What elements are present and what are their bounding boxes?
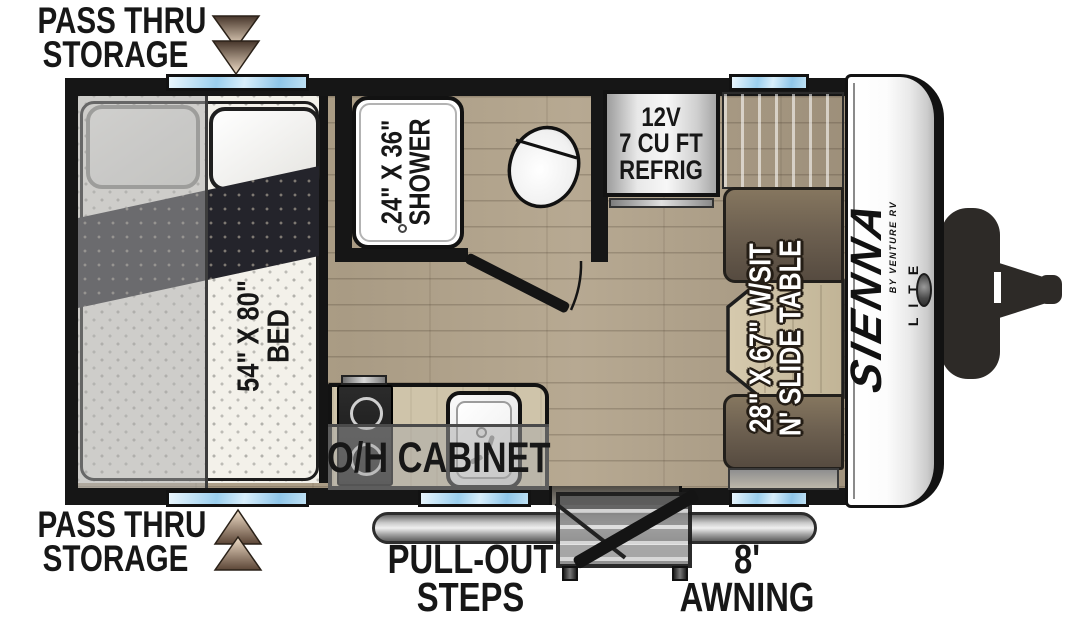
bathroom-wall-bottom (335, 248, 468, 262)
window (729, 490, 809, 507)
stove-vent (341, 375, 387, 385)
hitch-coupler (1038, 275, 1062, 304)
awning-label: 8' AWNING (679, 540, 815, 616)
pull-out-steps-label: PULL-OUT STEPS (385, 540, 557, 616)
dinette-label: 28" X 67" W/SIT N' SLIDE TABLE (746, 240, 807, 436)
bed-overhead-cabinet-overlay (78, 96, 208, 488)
refrigerator-base (609, 198, 714, 208)
floorplan-scene: O/H CABINET 54" X 80" BED 24" X 36" SHOW… (0, 0, 1073, 631)
refrigerator: 12V 7 CU FT REFRIG (603, 90, 720, 197)
dinette-seat-back (722, 92, 844, 189)
pass-thru-arrows-down-icon (207, 14, 265, 76)
pass-thru-arrows-up-icon (209, 508, 267, 572)
brand-name: SIENNA (847, 196, 887, 396)
propane-tank-cover (941, 208, 1000, 379)
dinette-seat-base (728, 468, 839, 490)
shower-label: 24" X 36" SHOWER (379, 118, 436, 225)
kitchen-overhead-cabinet-overlay: O/H CABINET (328, 424, 549, 490)
pass-thru-storage-label-top: PASS THRU STORAGE (38, 4, 194, 73)
window (418, 490, 531, 507)
brand-logo: SIENNA BY VENTURE RV LITE (847, 201, 921, 391)
hitch-gap (994, 272, 1001, 303)
window (729, 74, 809, 91)
bathroom-wall-left (335, 96, 352, 256)
window (166, 74, 309, 91)
pass-thru-storage-label-bottom: PASS THRU STORAGE (38, 508, 194, 577)
bed-size-label: 54" X 80" BED (234, 280, 295, 392)
brand-emblem-icon (916, 273, 932, 307)
kitchen-overhead-cabinet-label: O/H CABINET (327, 434, 551, 483)
step-foot (562, 566, 578, 581)
